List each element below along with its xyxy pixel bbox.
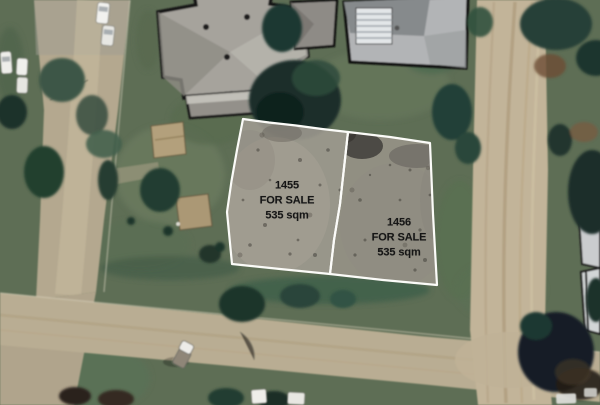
parked-car [16,58,28,76]
car [251,389,267,404]
tree [219,286,265,322]
lot-area: 535 sqm [372,246,427,261]
lot-number: 1455 [260,179,315,194]
tree [280,284,320,308]
tree [98,160,118,200]
tree [292,60,340,96]
tree [24,146,64,198]
tree [520,0,592,50]
car [101,25,115,46]
bush [127,217,135,225]
rust-patch [570,122,598,142]
tree [39,58,85,102]
lot-1455-label: 1455 FOR SALE 535 sqm [260,179,315,224]
parcel-overlay [220,119,450,287]
lot-number: 1456 [372,216,427,231]
car [287,392,305,405]
car [556,393,576,404]
tree [140,168,180,212]
parked-car [16,77,28,93]
tree [555,359,591,385]
shadow [59,387,91,405]
tree [520,312,552,340]
house-top-right [344,0,468,68]
shed [176,194,212,230]
tree [455,132,481,164]
lot-status: FOR SALE [372,231,427,246]
tree [432,84,472,140]
aerial-photo: 1455 FOR SALE 535 sqm 1456 FOR SALE 535 … [0,0,600,405]
tree [262,4,302,52]
bush [215,242,225,252]
tree [548,124,572,156]
lot-1456-label: 1456 FOR SALE 535 sqm [372,216,427,261]
lot-status: FOR SALE [260,194,315,209]
tree [330,290,356,308]
car [96,2,110,24]
rust-patch [534,54,566,78]
tree [86,130,122,158]
bush [163,226,173,236]
tree [76,95,108,135]
parked-car [0,51,13,74]
lot-area: 535 sqm [260,209,315,224]
tree [467,7,493,37]
car [584,388,597,397]
